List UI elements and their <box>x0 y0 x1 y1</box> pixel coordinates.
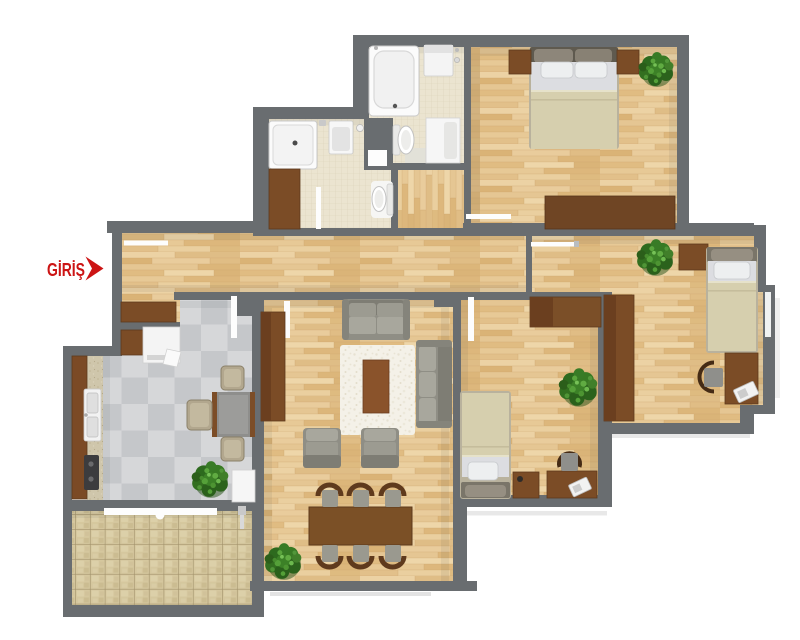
svg-text:GİRİŞ: GİRİŞ <box>47 260 85 280</box>
